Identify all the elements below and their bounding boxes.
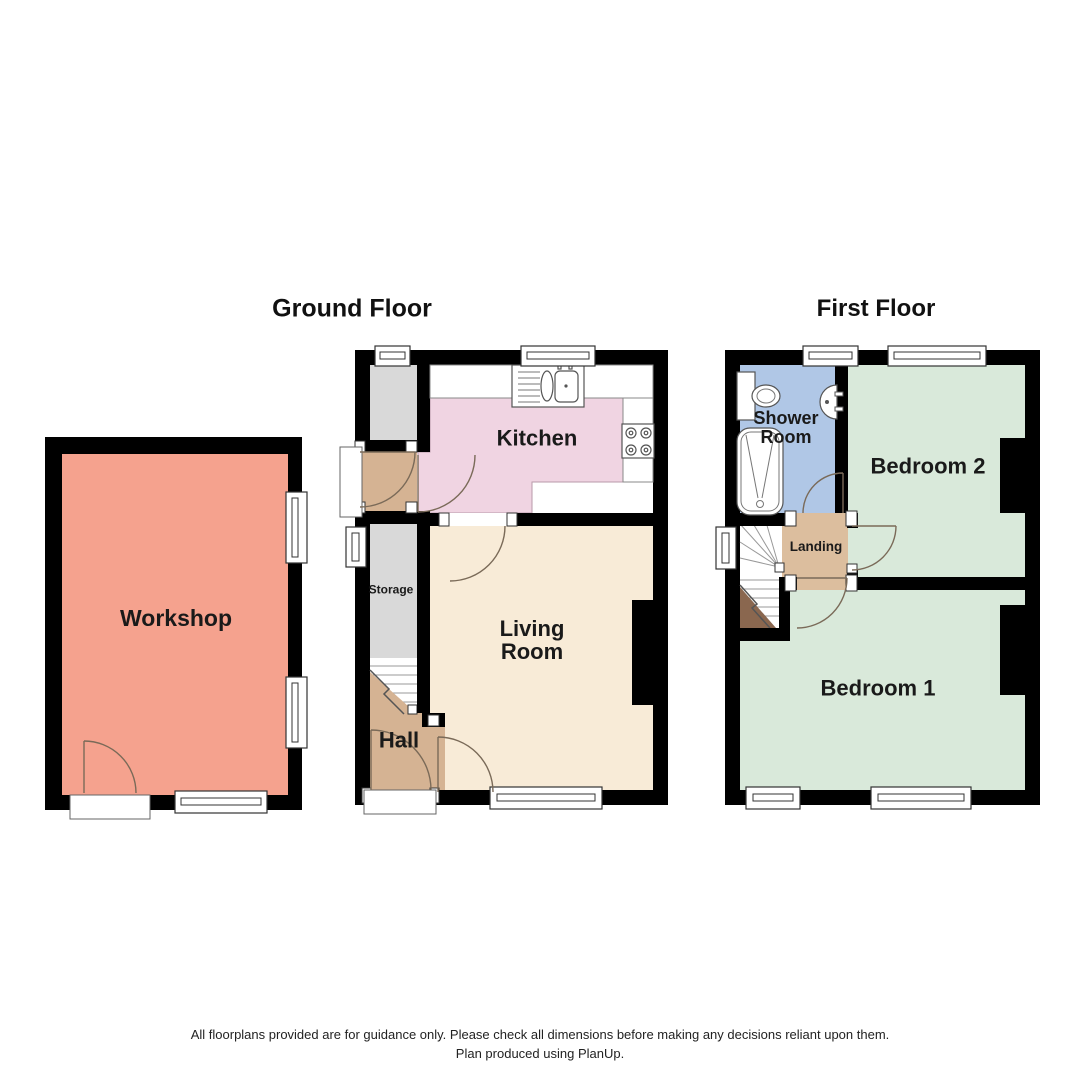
first-stairs-newel-post: [775, 563, 784, 572]
ground-floor-building: [340, 346, 668, 814]
bedroom1-window-bottom-wide: [871, 787, 971, 809]
ground-window-top-small: [375, 346, 410, 366]
first-window-top-small: [803, 346, 858, 366]
workshop-window-bottom: [175, 791, 267, 813]
bedroom2-room: [848, 365, 1025, 577]
ground-stairs: [370, 658, 417, 714]
workshop-window-right-2: [286, 677, 307, 748]
bedroom2-chimney-breast: [1000, 438, 1025, 513]
ground-window-top-wide: [521, 346, 595, 366]
first-window-top-wide: [888, 346, 986, 366]
floorplan-drawing: [0, 0, 1080, 1080]
first-floor-building: [716, 346, 1040, 809]
living-room-chimney-breast: [632, 600, 653, 705]
front-door-threshold: [364, 790, 436, 814]
storage-passage-top: [370, 365, 417, 440]
bedroom1-door-opening: [797, 577, 847, 590]
stairs-newel-post: [408, 705, 417, 714]
ground-window-left: [346, 527, 366, 567]
workshop-window-right-1: [286, 492, 307, 563]
side-entry-threshold: [340, 447, 362, 517]
workshop-door-threshold: [70, 795, 150, 819]
bedroom1-chimney-breast: [1000, 605, 1025, 695]
bedroom1-window-bottom-small: [746, 787, 800, 809]
workshop-building: [45, 437, 307, 819]
first-stairs: [740, 515, 784, 628]
living-window-bottom: [490, 787, 602, 809]
first-window-left: [716, 527, 736, 569]
kitchen-hob: [622, 424, 654, 458]
floorplan-canvas: Ground Floor First Floor Workshop Kitche…: [0, 0, 1080, 1080]
bath: [737, 428, 783, 515]
storage-room: [370, 523, 417, 658]
workshop-room: [62, 454, 288, 795]
kitchen-living-door-opening: [448, 513, 508, 526]
living-room: [430, 526, 653, 790]
